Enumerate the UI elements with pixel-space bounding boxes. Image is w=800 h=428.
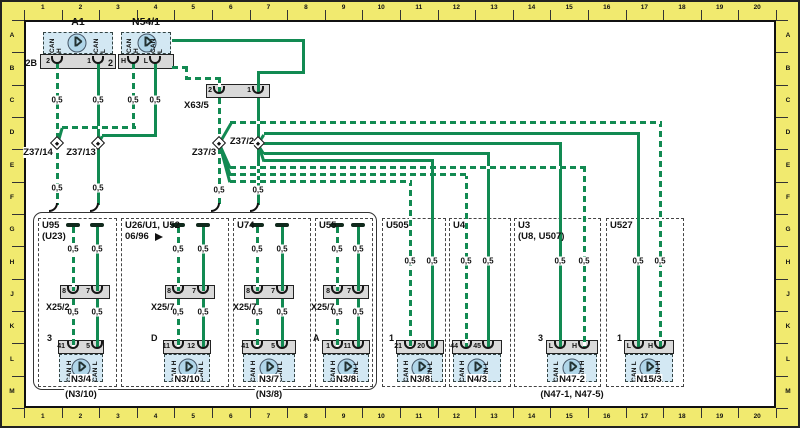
plug-label-n3-8b: 1 <box>389 333 394 343</box>
ruler-tick <box>12 20 24 21</box>
splice-label-z37-14: Z37/14 <box>23 147 53 158</box>
ruler-row-label: D <box>3 129 21 136</box>
ruler-col-label: 16 <box>588 413 626 420</box>
pin-n4-3-45: 45 <box>472 343 481 350</box>
ruler-col-label: 4 <box>137 413 175 420</box>
connector-label-x25-7b: X25/7 <box>233 302 257 312</box>
ruler-tick <box>212 10 213 20</box>
wire-gauge-label: 0,5 <box>50 96 63 105</box>
can-h-wire <box>256 227 259 291</box>
pin-n54-h: H <box>117 58 126 65</box>
ruler-tick <box>626 408 627 418</box>
ruler-col-label: 7 <box>250 4 288 11</box>
ruler-tick <box>776 408 777 418</box>
wire-gauge-label: 0,5 <box>351 308 364 317</box>
ruler-col-label: 19 <box>701 4 739 11</box>
wire-gauge-label: 0,5 <box>148 96 161 105</box>
ruler-tick <box>12 408 24 409</box>
can-h-wire <box>62 126 136 129</box>
ruler-col-label: 15 <box>550 4 588 11</box>
ruler-tick <box>776 52 788 53</box>
ruler-row-label: C <box>3 97 21 104</box>
wire-gauge-label: 0,5 <box>251 186 264 195</box>
device-label-n15-3: N15/3 <box>635 374 662 385</box>
plug-label-n3-10: D <box>151 333 158 343</box>
device-label-n47-2: N47-2 <box>558 374 586 385</box>
ruler-tick <box>12 246 24 247</box>
ruler-col-label: 5 <box>174 413 212 420</box>
section-title-u505: U505 <box>386 220 409 231</box>
ruler-tick <box>701 408 702 418</box>
can-l-wire <box>487 152 490 349</box>
pin-x25-7c-7: 7 <box>342 288 351 295</box>
ruler-tick <box>776 182 788 183</box>
ruler-row-label: L <box>779 356 797 363</box>
pin-x25-7b-7: 7 <box>266 288 275 295</box>
ruler-col-label: 7 <box>250 413 288 420</box>
ruler-col-label: 17 <box>626 413 664 420</box>
ruler-tick <box>99 408 100 418</box>
pin-n4-3-44: 44 <box>449 343 458 350</box>
can-h-wire <box>185 77 221 80</box>
ruler-row-label: A <box>779 32 797 39</box>
ruler-col-label: 8 <box>287 4 325 11</box>
plug-label-n15-3: 1 <box>617 333 622 343</box>
wire-gauge-label: 0,5 <box>553 257 566 266</box>
ruler-tick <box>12 311 24 312</box>
can-l-wire <box>431 159 434 349</box>
ruler-tick <box>776 10 777 20</box>
can-h-wire <box>230 180 412 183</box>
ruler-tick <box>99 10 100 20</box>
ruler-col-label: 13 <box>475 4 513 11</box>
ruler-row-label: J <box>779 291 797 298</box>
splice-label-z37-13: Z37/13 <box>66 147 96 158</box>
pin-n3-4-5: 5 <box>81 343 90 350</box>
wiring-diagram-page: 0,50,50,50,50,50,50,50,50,50,50,50,50,50… <box>0 0 800 428</box>
ruler-tick <box>550 10 551 20</box>
plug-label-n3-4: 3 <box>47 333 52 343</box>
ruler-tick <box>12 85 24 86</box>
ruler-tick <box>776 246 788 247</box>
component-label-a1: A1 <box>71 16 84 28</box>
ruler-tick <box>12 376 24 377</box>
ruler-tick <box>12 149 24 150</box>
ruler-tick <box>475 10 476 20</box>
ruler-tick <box>62 408 63 418</box>
device-label-n3-8a: N3/8 <box>335 374 357 385</box>
ruler-tick <box>776 214 788 215</box>
can-l-wire <box>172 39 305 42</box>
ruler-col-label: 12 <box>438 413 476 420</box>
component-label-n54-1: N54/1 <box>132 16 160 28</box>
ruler-col-label: 3 <box>99 4 137 11</box>
section-date-u26: 06/96 <box>125 231 149 242</box>
can-h-wire <box>172 66 188 69</box>
ruler-tick <box>513 10 514 20</box>
pin-n3-10-12: 12 <box>186 343 195 350</box>
ruler-tick <box>475 408 476 418</box>
can-l-wire <box>202 227 205 291</box>
ruler-col-label: 19 <box>701 413 739 420</box>
ruler-tick <box>62 10 63 20</box>
ruler-tick <box>776 311 788 312</box>
ruler-tick <box>588 408 589 418</box>
ruler-col-label: 16 <box>588 4 626 11</box>
splice-label-z37-3: Z37/3 <box>192 147 216 158</box>
ruler-tick <box>287 10 288 20</box>
ruler-tick <box>438 10 439 20</box>
ruler-row-label: M <box>779 388 797 395</box>
ruler-row-label: E <box>779 162 797 169</box>
can-l-wire <box>102 134 157 137</box>
ruler-col-label: 13 <box>475 413 513 420</box>
can-l-wire <box>357 227 360 291</box>
ruler-tick <box>212 408 213 418</box>
can-l-wire <box>257 71 305 74</box>
ruler-col-label: 18 <box>663 413 701 420</box>
can-l-wire <box>559 142 562 349</box>
ruler-col-label: 12 <box>438 4 476 11</box>
ruler-row-label: C <box>779 97 797 104</box>
can-h-wire <box>177 227 180 291</box>
ruler-tick <box>776 117 788 118</box>
pin-n3-8a-1: 1 <box>321 343 330 350</box>
device-sublabel-n3-7: (N3/8) <box>255 389 283 400</box>
can-l-wire <box>264 132 640 135</box>
can-l-wire <box>264 159 434 162</box>
ruler-row-label: E <box>3 162 21 169</box>
can-h-wire <box>336 227 339 291</box>
wire-gauge-label: 0,5 <box>196 245 209 254</box>
device-sublabel-n3-4: (N3/10) <box>64 389 98 400</box>
wire-terminal-icon <box>90 223 104 227</box>
ruler-tick <box>12 117 24 118</box>
pin-x25-7a-7: 7 <box>187 288 196 295</box>
section-title-u3: U3 <box>518 220 530 231</box>
ruler-col-label: 11 <box>400 4 438 11</box>
pin-n3-10-11: 11 <box>161 343 170 350</box>
ruler-tick <box>174 10 175 20</box>
section-title-u55: U55 <box>319 220 336 231</box>
can-h-n3-7: CAN H <box>250 356 257 382</box>
ruler-col-label: 9 <box>325 4 363 11</box>
wire-gauge-label: 0,5 <box>653 257 666 266</box>
ruler-tick <box>738 408 739 418</box>
ecu-symbol-icon-a1 <box>68 34 87 53</box>
wire-gauge-label: 0,5 <box>275 308 288 317</box>
ruler-col-label: 20 <box>738 413 776 420</box>
ruler-tick <box>250 408 251 418</box>
ruler-row-label: M <box>3 388 21 395</box>
ruler-tick <box>400 408 401 418</box>
ruler-col-label: 9 <box>325 413 363 420</box>
wire-terminal-icon <box>351 223 365 227</box>
ruler-col-label: 5 <box>174 4 212 11</box>
plug-label-a1: 2B <box>22 58 37 68</box>
ruler-tick <box>626 10 627 20</box>
ruler-row-label: F <box>3 194 21 201</box>
pin-x25-7c-8: 8 <box>321 288 330 295</box>
ruler-col-label: 17 <box>626 4 664 11</box>
ruler-tick <box>701 10 702 20</box>
pin-a1-1: 1 <box>82 58 91 65</box>
ruler-col-label: 3 <box>99 413 137 420</box>
connector-label-x25-7a: X25/7 <box>151 302 175 312</box>
section-title-u527: U527 <box>610 220 633 231</box>
pin-x25-2-7: 7 <box>81 288 90 295</box>
ruler-tick <box>174 408 175 418</box>
ruler-col-label: 18 <box>663 4 701 11</box>
section-subtitle-u23: (U23) <box>42 231 66 242</box>
can-h-wire <box>659 121 662 349</box>
wire-gauge-label: 0,5 <box>90 245 103 254</box>
pin-n47-2-l: L <box>544 343 553 350</box>
pin-n3-8b-21: 21 <box>393 343 402 350</box>
ruler-col-label: 6 <box>212 413 250 420</box>
ruler-tick <box>12 182 24 183</box>
can-h-wire <box>230 173 468 176</box>
section-title-u95: U95 <box>42 220 59 231</box>
device-label-n4-3: N4/3 <box>466 374 488 385</box>
can-h-label-a1: CAN H <box>49 34 63 53</box>
ruler-col-label: 4 <box>137 4 175 11</box>
ruler-tick <box>250 10 251 20</box>
ruler-col-label: 1 <box>24 4 62 11</box>
wire-gauge-label: 0,5 <box>196 308 209 317</box>
pin-n15-3-h: H <box>644 343 653 350</box>
wire-terminal-icon <box>66 223 80 227</box>
can-h-n4-3: CAN H <box>459 356 466 382</box>
plug-label-n47-2: 3 <box>538 333 543 343</box>
ruler-tick <box>137 408 138 418</box>
ruler-tick <box>663 408 664 418</box>
ruler-row-label: K <box>3 323 21 330</box>
ruler-row-label: F <box>779 194 797 201</box>
wire-gauge-label: 0,5 <box>250 245 263 254</box>
ruler-tick <box>400 10 401 20</box>
ruler-tick <box>287 408 288 418</box>
wire-gauge-label: 0,5 <box>126 96 139 105</box>
ruler-tick <box>776 20 788 21</box>
ruler-tick <box>663 10 664 20</box>
can-h-label-n54: CAN H <box>126 34 140 53</box>
connector-label-x25-2: X25/2 <box>46 302 70 312</box>
pin-n3-7-5: 5 <box>266 343 275 350</box>
ruler-row-label: K <box>779 323 797 330</box>
splice-label-z37-2: Z37/2 <box>230 136 254 147</box>
section-title-u26: U26/U1, U52 <box>125 220 180 231</box>
pin-n3-4-41: 41 <box>56 343 65 350</box>
ruler-row-label: B <box>779 65 797 72</box>
ruler-row-label: B <box>3 65 21 72</box>
can-h-wire <box>230 121 662 124</box>
pin-x25-7b-8: 8 <box>241 288 250 295</box>
ruler-col-label: 2 <box>62 4 100 11</box>
pin-x25-2-8: 8 <box>57 288 66 295</box>
ruler-row-label: A <box>3 32 21 39</box>
wire-gauge-label: 0,5 <box>91 96 104 105</box>
wire-gauge-label: 0,5 <box>330 245 343 254</box>
ruler-row-label: G <box>3 226 21 233</box>
device-label-n3-4: N3/4 <box>70 374 92 385</box>
ruler-tick <box>776 149 788 150</box>
wire-gauge-label: 0,5 <box>425 257 438 266</box>
device-label-n3-10: N3/10 <box>173 374 200 385</box>
wire-gauge-label: 0,5 <box>577 257 590 266</box>
ruler-tick <box>776 343 788 344</box>
wire-gauge-label: 0,5 <box>481 257 494 266</box>
ruler-col-label: 2 <box>62 413 100 420</box>
wire-gauge-label: 0,5 <box>275 245 288 254</box>
ruler-row-label: H <box>779 259 797 266</box>
ruler-tick <box>738 10 739 20</box>
wire-gauge-label: 0,5 <box>66 245 79 254</box>
pin-n3-8a-11: 11 <box>342 343 351 350</box>
ruler-tick <box>550 408 551 418</box>
pin-n3-8b-20: 20 <box>416 343 425 350</box>
wire-gauge-label: 0,5 <box>631 257 644 266</box>
date-arrow-icon <box>155 233 163 241</box>
ruler-row-label: J <box>3 291 21 298</box>
ruler-col-label: 14 <box>513 413 551 420</box>
ruler-row-label: L <box>3 356 21 363</box>
can-l-wire <box>261 142 562 145</box>
wire-gauge-label: 0,5 <box>50 184 63 193</box>
ruler-tick <box>12 279 24 280</box>
ruler-tick <box>12 343 24 344</box>
device-label-n3-7: N3/7 <box>258 374 280 385</box>
pin-n54-l: L <box>139 58 148 65</box>
device-sublabel-n47-2: (N47-1, N47-5) <box>539 389 604 400</box>
pin-x63-2: 2 <box>203 87 212 94</box>
ruler-col-label: 1 <box>24 413 62 420</box>
ruler-row-label: D <box>779 129 797 136</box>
ruler-tick <box>362 10 363 20</box>
pin-n3-7-41: 41 <box>240 343 249 350</box>
wire-gauge-label: 0,5 <box>212 186 225 195</box>
wire-gauge-label: 0,5 <box>171 245 184 254</box>
ruler-col-label: 11 <box>400 413 438 420</box>
can-l-label-a1: CAN L <box>93 34 107 53</box>
pin-x63-1: 1 <box>242 87 251 94</box>
ruler-tick <box>24 408 25 418</box>
ruler-col-label: 10 <box>362 413 400 420</box>
wire-gauge-label: 0,5 <box>459 257 472 266</box>
ruler-row-label: G <box>779 226 797 233</box>
wire-gauge-label: 0,5 <box>90 308 103 317</box>
ruler-tick <box>776 85 788 86</box>
wire-gauge-label: 0,5 <box>403 257 416 266</box>
ruler-tick <box>325 10 326 20</box>
ruler-tick <box>776 408 788 409</box>
ruler-col-label: 10 <box>362 4 400 11</box>
ruler-col-label: 8 <box>287 413 325 420</box>
can-h-wire <box>72 227 75 291</box>
can-l-n3-4: CAN L <box>92 356 99 382</box>
section-title-u4: U4 <box>453 220 465 231</box>
section-title-u74: U74 <box>237 220 254 231</box>
plug-label-n3-8a: A <box>313 333 320 343</box>
ruler-tick <box>588 10 589 20</box>
wire-gauge-label: 0,5 <box>351 245 364 254</box>
pin-x25-7a-8: 8 <box>162 288 171 295</box>
ruler-tick <box>362 408 363 418</box>
can-l-wire <box>302 39 305 74</box>
pin-a1-2: 2 <box>41 58 50 65</box>
ruler-col-label: 6 <box>212 4 250 11</box>
ruler-tick <box>12 52 24 53</box>
can-h-wire <box>230 166 586 169</box>
connector-label-x25-7c: X25/7 <box>311 302 335 312</box>
can-l-wire <box>264 152 490 155</box>
ruler-tick <box>438 408 439 418</box>
can-l-wire <box>281 227 284 291</box>
ruler-tick <box>325 408 326 418</box>
device-label-n3-8b: N3/8 <box>409 374 431 385</box>
can-l-wire <box>637 132 640 349</box>
ruler-tick <box>12 214 24 215</box>
ruler-col-label: 20 <box>738 4 776 11</box>
ruler-tick <box>776 376 788 377</box>
can-l-wire <box>96 227 99 291</box>
can-l-label-n54: CAN L <box>150 34 164 53</box>
wire-terminal-icon <box>275 223 289 227</box>
pin-n15-3-l: L <box>622 343 631 350</box>
pin-n47-2-h: H <box>568 343 577 350</box>
section-subtitle-u3: (U8, U507) <box>518 231 564 242</box>
ruler-col-label: 15 <box>550 413 588 420</box>
wire-gauge-label: 0,5 <box>91 184 104 193</box>
plug-label-n54-1: 2 <box>108 58 113 68</box>
ruler-tick <box>513 408 514 418</box>
ruler-col-label: 14 <box>513 4 551 11</box>
ruler-tick <box>776 279 788 280</box>
ruler-tick <box>24 10 25 20</box>
ruler-row-label: H <box>3 259 21 266</box>
connector-label-x63-5: X63/5 <box>184 100 209 111</box>
wire-terminal-icon <box>196 223 210 227</box>
